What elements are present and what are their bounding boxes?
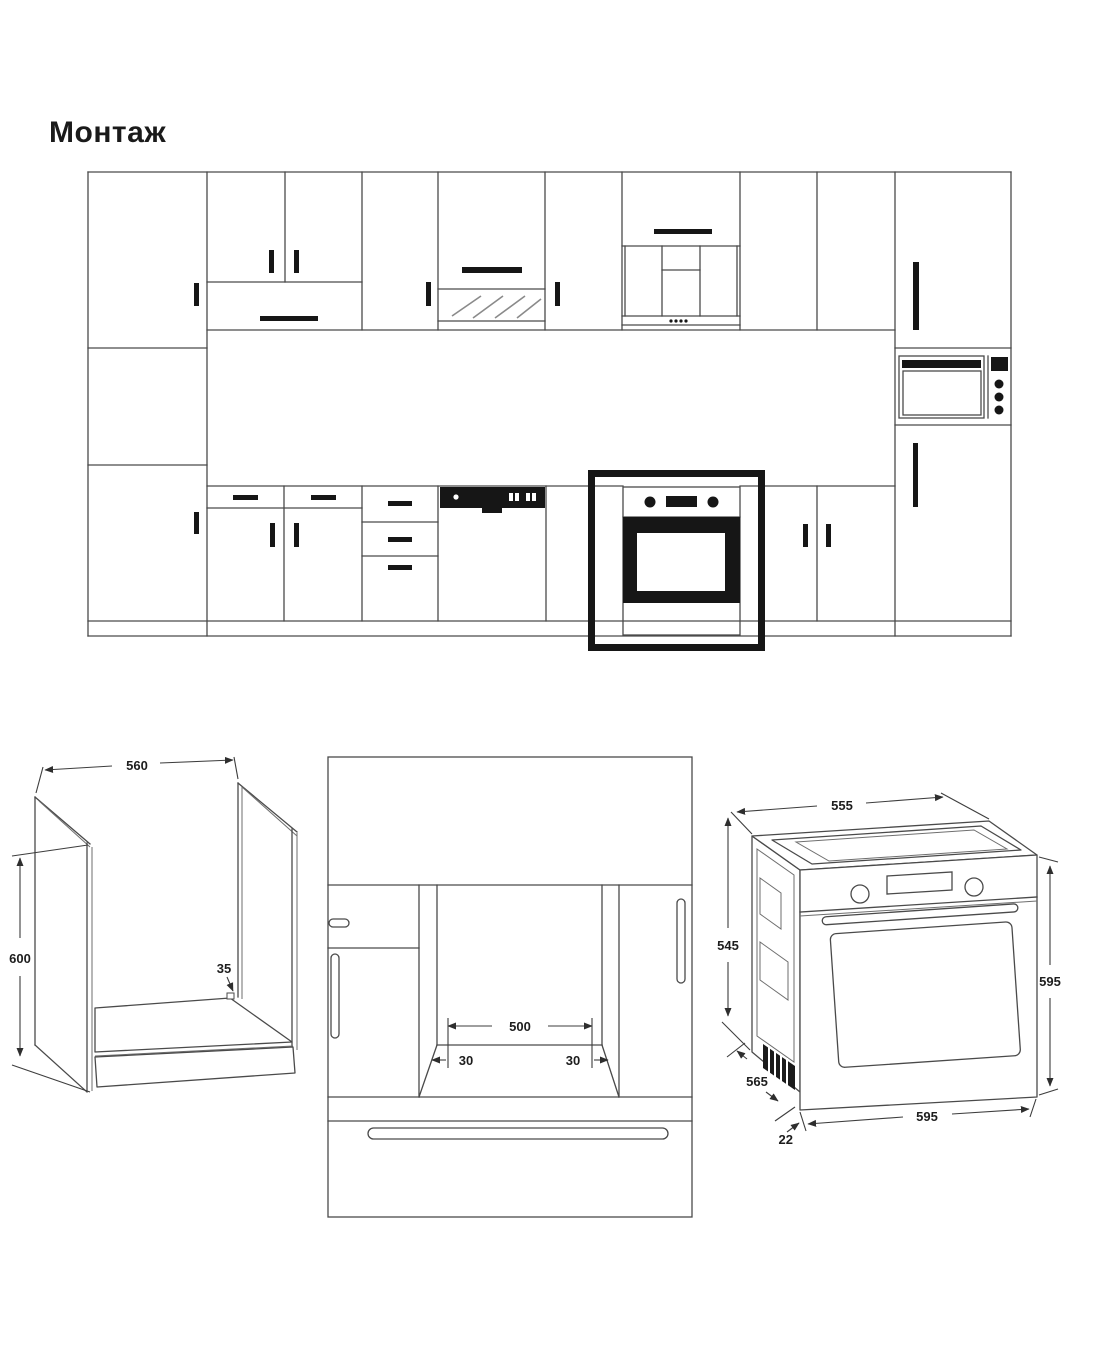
glass-wall-unit [438, 267, 545, 321]
handle [294, 250, 299, 273]
oven-display [666, 496, 697, 507]
handle [555, 282, 560, 306]
handle [194, 283, 199, 306]
dimension-door-protrusion: 22 [779, 1123, 799, 1147]
dim-label-545: 545 [717, 938, 739, 953]
oven-front [800, 855, 1037, 1110]
manual-page: Монтаж [0, 0, 1110, 1362]
dim-label-595-right: 595 [1039, 974, 1061, 989]
kitchen-elevation [88, 172, 1011, 648]
wall-units [88, 172, 1011, 330]
oven-knob [708, 497, 719, 508]
door-handle [331, 954, 339, 1038]
dim-label-500: 500 [509, 1019, 531, 1034]
cabinet-carcass [35, 783, 297, 1092]
drawer-handle [368, 1128, 668, 1139]
handle [269, 250, 274, 273]
dim-label-30-left: 30 [459, 1053, 473, 1068]
dim-label-35: 35 [217, 961, 231, 976]
handle [260, 316, 318, 321]
handle [826, 524, 831, 547]
oven-isometric: 555 545 565 595 [717, 793, 1061, 1147]
handle [388, 537, 412, 542]
microwave-display [991, 357, 1008, 371]
handle [388, 565, 412, 570]
handle [270, 523, 275, 547]
dimension-body-height: 545 [717, 818, 750, 1050]
hood-unit [622, 229, 740, 325]
tall-unit-left [88, 172, 207, 636]
microwave-button [995, 380, 1004, 389]
dimension-width: 560 [36, 757, 238, 793]
oven-highlight [88, 474, 1011, 648]
tall-unit-right [895, 172, 1011, 636]
base-units [207, 486, 895, 621]
control-knob [851, 885, 869, 903]
microwave-button [995, 406, 1004, 415]
dimension-front-height: 595 [1039, 857, 1061, 1095]
handle [194, 512, 199, 534]
handle [913, 262, 919, 330]
handle [913, 443, 918, 507]
dimension-rear-gap: 35 [217, 961, 234, 999]
dim-label-560: 560 [126, 758, 148, 773]
handle [311, 495, 336, 500]
microwave-button [995, 393, 1004, 402]
drawer-handle [329, 919, 349, 927]
dim-label-555: 555 [831, 798, 853, 813]
dim-label-30-right: 30 [566, 1053, 580, 1068]
niche-front-view: 500 30 30 [328, 757, 692, 1217]
niche-isometric: 560 600 35 [9, 757, 297, 1092]
dim-label-595-bottom: 595 [916, 1109, 938, 1124]
oven-knob [645, 497, 656, 508]
handle [388, 501, 412, 506]
oven-window [637, 533, 725, 591]
dim-label-600: 600 [9, 951, 31, 966]
dim-label-565: 565 [746, 1074, 768, 1089]
handle [294, 523, 299, 547]
built-in-microwave [899, 356, 1008, 418]
dimension-height: 600 [9, 845, 90, 1092]
door-handle [677, 899, 685, 983]
handle [426, 282, 431, 306]
handle [803, 524, 808, 547]
dimension-right-margin: 30 [566, 1053, 608, 1068]
installation-diagram: 560 600 35 [0, 0, 1110, 1362]
dim-label-22: 22 [779, 1132, 793, 1147]
control-knob [965, 878, 983, 896]
handle [233, 495, 258, 500]
dishwasher [440, 487, 545, 513]
dimension-left-margin: 30 [432, 1053, 473, 1068]
